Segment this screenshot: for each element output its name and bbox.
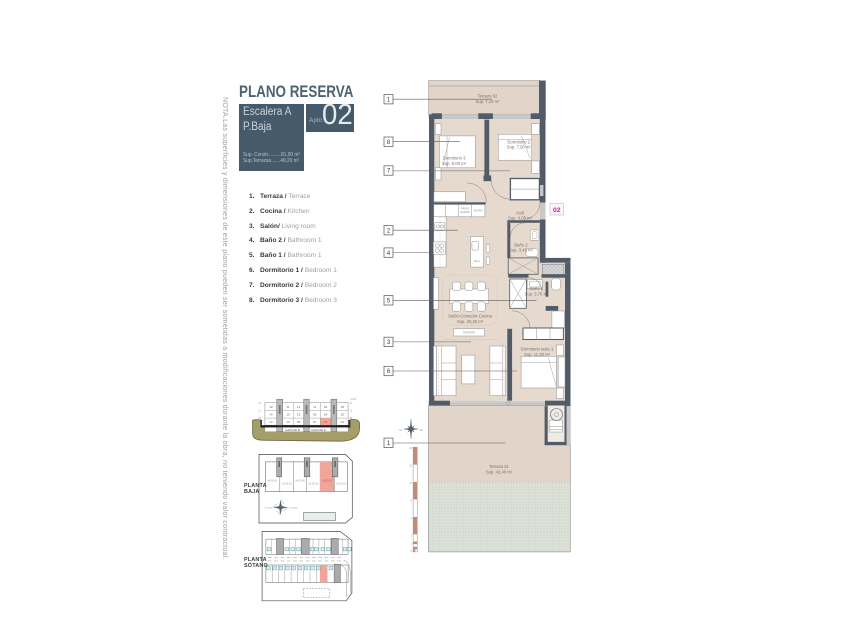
- svg-text:08: 08: [297, 420, 301, 424]
- svg-text:11: 11: [258, 410, 261, 413]
- svg-text:20: 20: [341, 413, 345, 417]
- svg-text:Sup. 20,20 m²: Sup. 20,20 m²: [457, 319, 484, 324]
- svg-text:04: 04: [324, 413, 328, 417]
- svg-text:8: 8: [411, 500, 413, 503]
- svg-text:10: 10: [269, 405, 273, 409]
- svg-text:20: 20: [409, 447, 412, 450]
- svg-text:12: 12: [409, 482, 412, 485]
- svg-text:2: 2: [411, 535, 413, 538]
- svg-text:14: 14: [269, 413, 273, 417]
- svg-text:Sup. 3,45 m²: Sup. 3,45 m²: [509, 248, 534, 253]
- svg-text:E: E: [420, 428, 422, 432]
- svg-text:Sup. 9,00 m²: Sup. 9,00 m²: [442, 161, 467, 166]
- svg-text:04-05-06: 04-05-06: [295, 480, 305, 483]
- svg-text:O: O: [399, 428, 402, 432]
- svg-text:ISLA: ISLA: [474, 259, 480, 263]
- svg-text:Salón-Comedor-Cocina: Salón-Comedor-Cocina: [448, 314, 492, 319]
- svg-text:Sup. 11,30 m²: Sup. 11,30 m²: [524, 352, 551, 357]
- svg-text:14: 14: [269, 420, 273, 424]
- svg-text:09: 09: [313, 413, 317, 417]
- svg-text:Sup. 3,76 m²: Sup. 3,76 m²: [525, 292, 550, 297]
- svg-text:+6,20: +6,20: [350, 398, 357, 401]
- svg-text:C/ CHILE: C/ CHILE: [288, 507, 298, 509]
- svg-text:Sup. 42,40 m²: Sup. 42,40 m²: [486, 470, 513, 475]
- svg-text:Terraza 01: Terraza 01: [489, 464, 509, 469]
- svg-text:41: 41: [349, 402, 352, 405]
- svg-text:11: 11: [313, 405, 316, 409]
- svg-text:Dormitorio 3: Dormitorio 3: [443, 156, 466, 161]
- svg-text:GARAJE B: GARAJE B: [285, 428, 300, 432]
- svg-text:04-05-06: 04-05-06: [267, 480, 277, 483]
- svg-text:MICRO: MICRO: [474, 209, 483, 213]
- svg-text:01-02-03: 01-02-03: [336, 483, 346, 486]
- svg-text:01: 01: [341, 420, 345, 424]
- svg-text:46: 46: [258, 417, 261, 420]
- svg-text:01-02-03: 01-02-03: [282, 483, 292, 486]
- svg-text:11: 11: [286, 405, 289, 409]
- svg-text:13: 13: [286, 420, 290, 424]
- svg-text:02: 02: [324, 420, 328, 424]
- svg-text:01-02-03: 01-02-03: [309, 483, 319, 486]
- svg-text:Dormitorio suite 1: Dormitorio suite 1: [521, 347, 554, 352]
- svg-text:07: 07: [313, 420, 317, 424]
- svg-text:20: 20: [341, 405, 345, 409]
- svg-text:4: 4: [411, 517, 413, 520]
- svg-text:01-02-03: 01-02-03: [322, 480, 332, 483]
- svg-text:15: 15: [286, 413, 290, 417]
- svg-text:16: 16: [297, 413, 301, 417]
- svg-text:71: 71: [349, 410, 352, 413]
- svg-text:C/ PERU: C/ PERU: [264, 507, 273, 509]
- svg-text:49: 49: [258, 402, 261, 405]
- svg-text:1: 1: [411, 543, 413, 546]
- svg-text:Sup. 4,05 m²: Sup. 4,05 m²: [508, 216, 533, 221]
- svg-text:12: 12: [297, 405, 301, 409]
- svg-text:GARAJE E: GARAJE E: [311, 428, 326, 432]
- svg-text:02: 02: [553, 207, 561, 214]
- svg-text:Sup. 7,50 m²: Sup. 7,50 m²: [507, 145, 532, 150]
- svg-text:06: 06: [324, 405, 328, 409]
- svg-text:16: 16: [409, 465, 412, 468]
- svg-text:Baño 1: Baño 1: [530, 286, 544, 291]
- svg-text:HORNO: HORNO: [460, 210, 470, 214]
- svg-text:Sup. 7,10 m²: Sup. 7,10 m²: [476, 99, 501, 104]
- svg-text:Terraza 02: Terraza 02: [478, 94, 498, 99]
- svg-text:0: 0: [411, 550, 413, 553]
